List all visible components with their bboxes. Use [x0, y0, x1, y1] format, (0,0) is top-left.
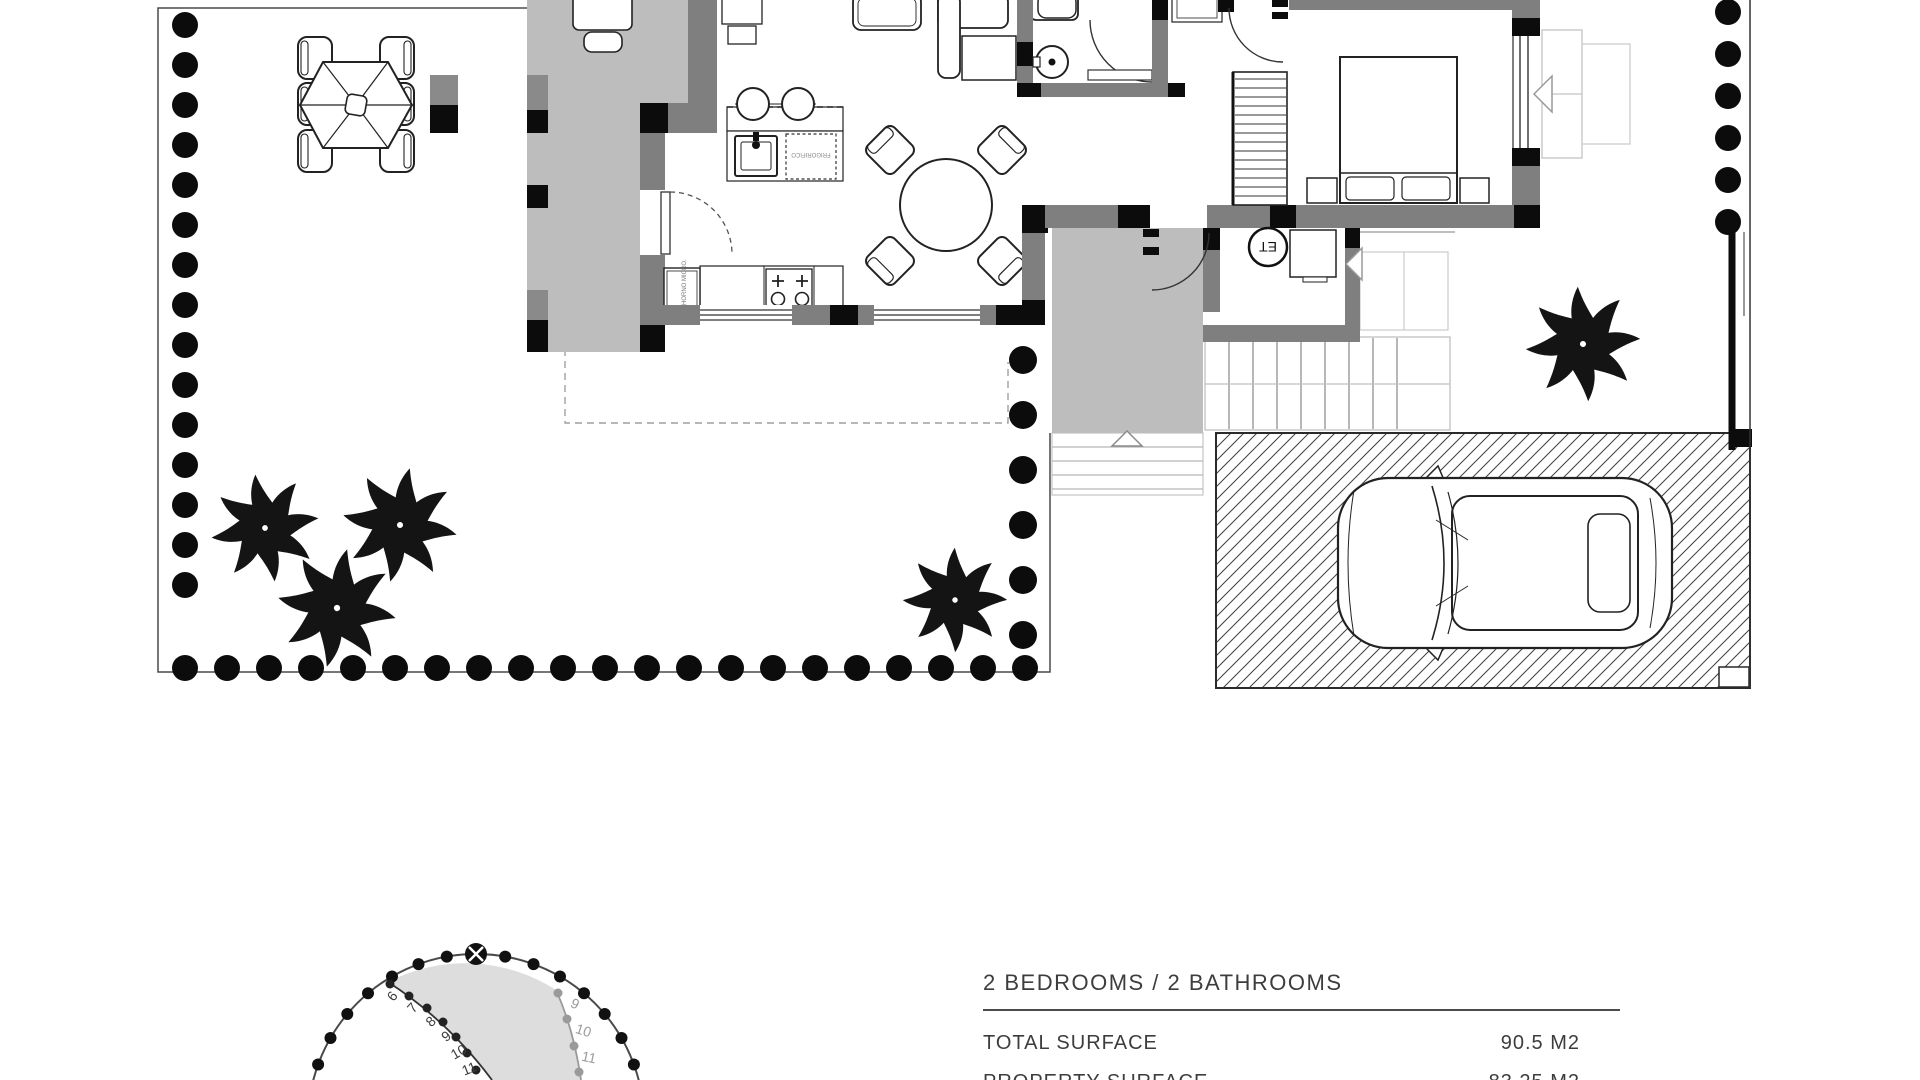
floor-plan-page: FRIGORIFICO HORNO MICRO. [0, 0, 1920, 1080]
window [874, 305, 980, 325]
dining-table [900, 159, 992, 251]
bedroom-door [1229, 0, 1288, 62]
palm-tree-icon [1517, 278, 1649, 410]
sun-path-diagram: 6 7 8 9 10 11 9 10 11 [308, 943, 644, 1080]
svg-text:9: 9 [568, 995, 582, 1013]
utility-appliance [1290, 230, 1336, 282]
summary-row: TOTAL SURFACE 90.5 M2 [983, 1032, 1580, 1055]
pillow [1402, 177, 1450, 200]
parking-notch [1719, 667, 1749, 687]
property-summary: 2 BEDROOMS / 2 BATHROOMS TOTAL SURFACE 9… [983, 970, 1620, 1080]
summary-title: 2 BEDROOMS / 2 BATHROOMS [983, 970, 1620, 1011]
pergola-pillar [430, 75, 458, 133]
palm-tree-icon [890, 535, 1020, 665]
window [700, 305, 792, 325]
floor-plan-drawing: FRIGORIFICO HORNO MICRO. [0, 0, 1920, 1080]
oven-column: HORNO MICRO. [664, 259, 700, 309]
svg-text:HORNO MICRO.: HORNO MICRO. [682, 259, 688, 305]
summary-row-label: TOTAL SURFACE [983, 1032, 1158, 1055]
nightstand [1460, 178, 1489, 203]
svg-text:ET: ET [1259, 239, 1277, 255]
side-table [962, 36, 1016, 80]
wardrobe [1233, 72, 1287, 205]
shower-tray [1172, 0, 1222, 22]
svg-text:11: 11 [580, 1048, 598, 1067]
fridge: FRIGORIFICO [786, 134, 836, 179]
svg-text:FRIGORIFICO: FRIGORIFICO [791, 151, 831, 157]
bathroom-door [1088, 20, 1152, 82]
breakfast-bar [727, 88, 843, 131]
compass-marker-icon [465, 943, 487, 965]
parking-area [1216, 429, 1752, 688]
summary-row-value: 90.5 M2 [1501, 1032, 1580, 1055]
stool [737, 88, 769, 120]
palm-tree-icon [334, 459, 466, 591]
bedroom [1218, 0, 1630, 205]
svg-text:6: 6 [383, 988, 401, 1004]
svg-text:10: 10 [574, 1020, 594, 1040]
nightstand [1307, 178, 1337, 203]
kitchen-door [661, 192, 732, 254]
summary-row: PROPERTY SURFACE 83.25 M2 [983, 1071, 1580, 1080]
entry-path [1052, 228, 1203, 446]
washbasin [1033, 46, 1068, 78]
kitchen-lower-counter: HORNO MICRO. [664, 259, 843, 311]
sink [735, 132, 777, 176]
water-heater: ET [1249, 228, 1287, 266]
kitchen-shelf [722, 0, 762, 44]
pillow [1346, 177, 1394, 200]
kitchen-counter: FRIGORIFICO [727, 131, 843, 181]
stool [782, 88, 814, 120]
summary-row-label: PROPERTY SURFACE [983, 1071, 1208, 1080]
window-exterior-detail [1542, 30, 1630, 158]
summary-row-value: 83.25 M2 [1489, 1071, 1580, 1080]
bed [1340, 57, 1457, 203]
car [1338, 466, 1672, 660]
bathroom-1 [1017, 0, 1222, 97]
parasol-table [300, 62, 412, 148]
dining-table-set [863, 123, 1029, 288]
toilet [1038, 0, 1076, 18]
terrace-dining-set [298, 37, 414, 172]
